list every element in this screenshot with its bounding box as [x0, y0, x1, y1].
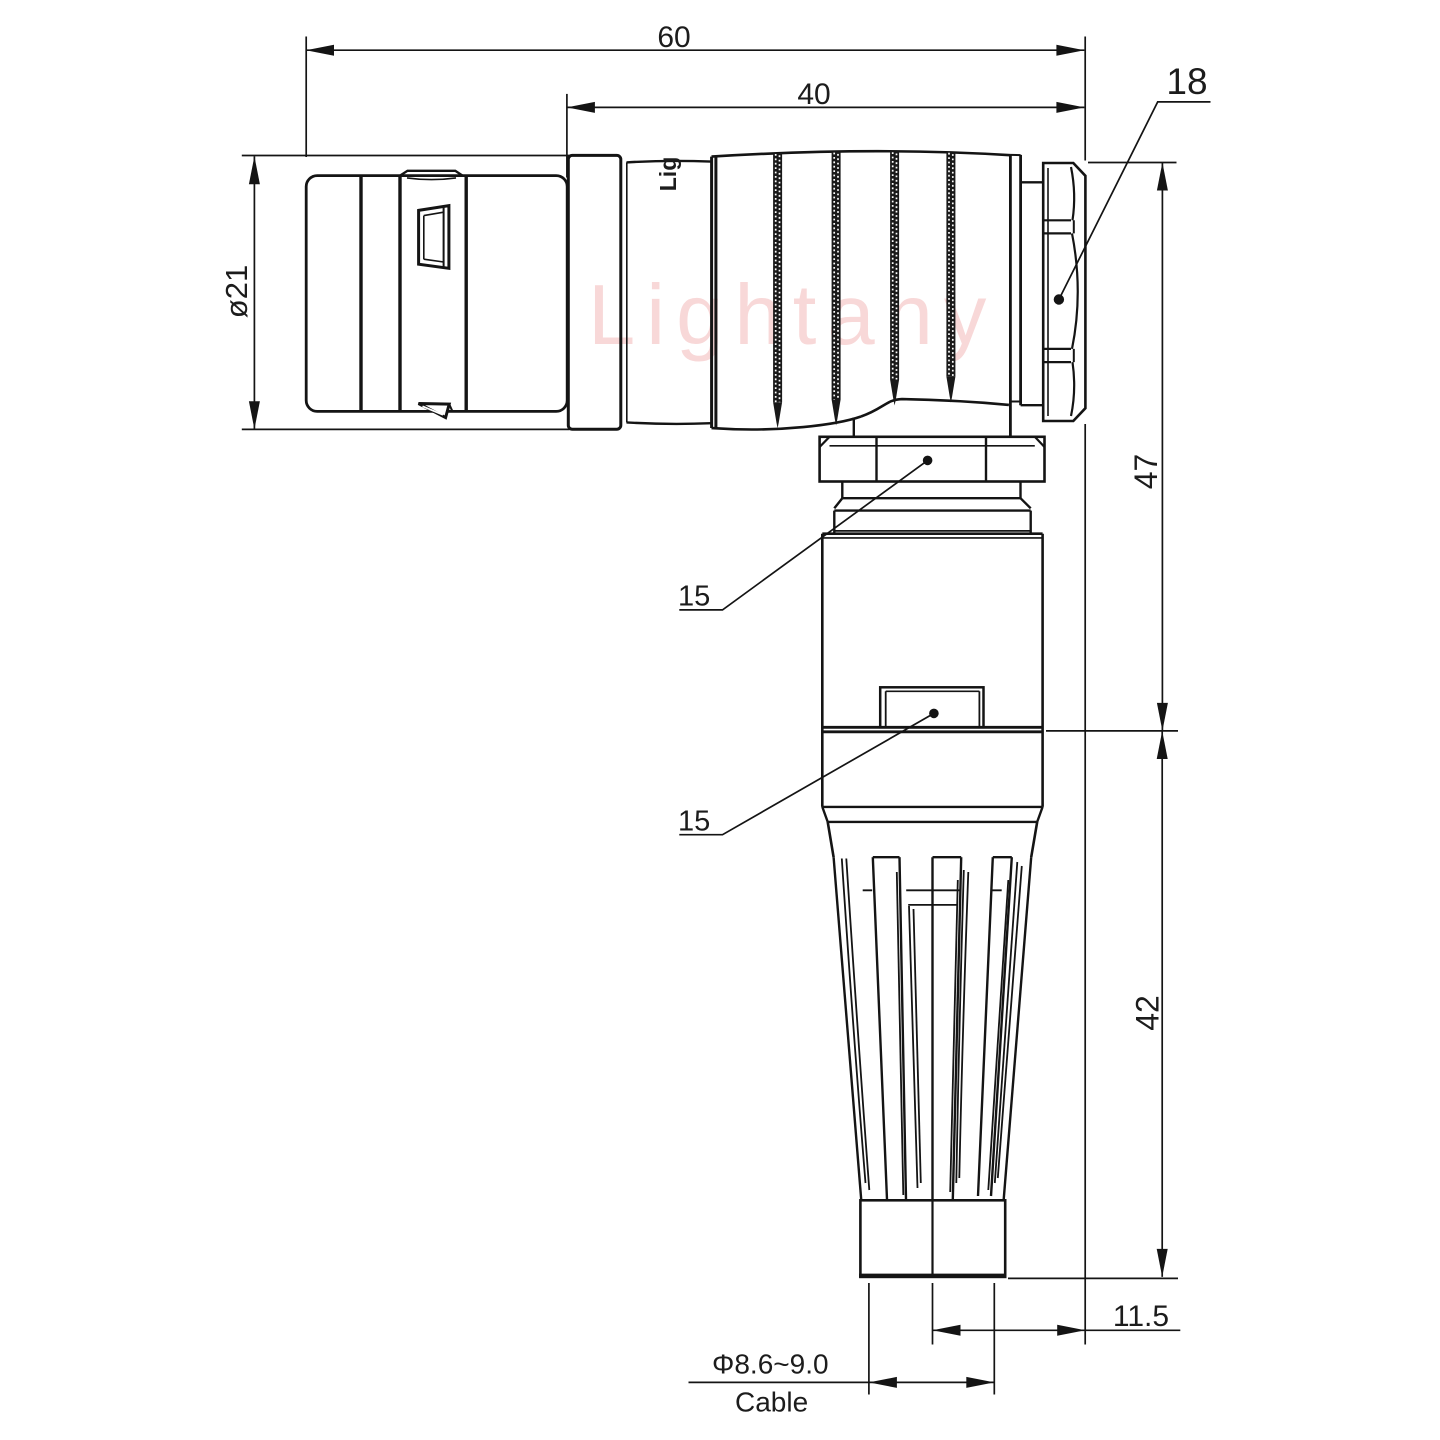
svg-text:18: 18 [1166, 61, 1207, 102]
svg-text:Cable: Cable [735, 1387, 808, 1418]
svg-text:Φ8.6~9.0: Φ8.6~9.0 [712, 1349, 829, 1380]
svg-text:Lig: Lig [655, 157, 681, 192]
svg-text:60: 60 [657, 21, 690, 54]
svg-text:15: 15 [678, 581, 710, 613]
svg-text:47: 47 [1128, 454, 1164, 490]
svg-text:40: 40 [797, 78, 830, 111]
svg-text:15: 15 [678, 805, 710, 837]
svg-text:42: 42 [1130, 995, 1166, 1031]
svg-text:Lightany: Lightany [588, 268, 997, 363]
svg-text:ø21: ø21 [219, 265, 254, 318]
svg-text:11.5: 11.5 [1113, 1300, 1169, 1333]
